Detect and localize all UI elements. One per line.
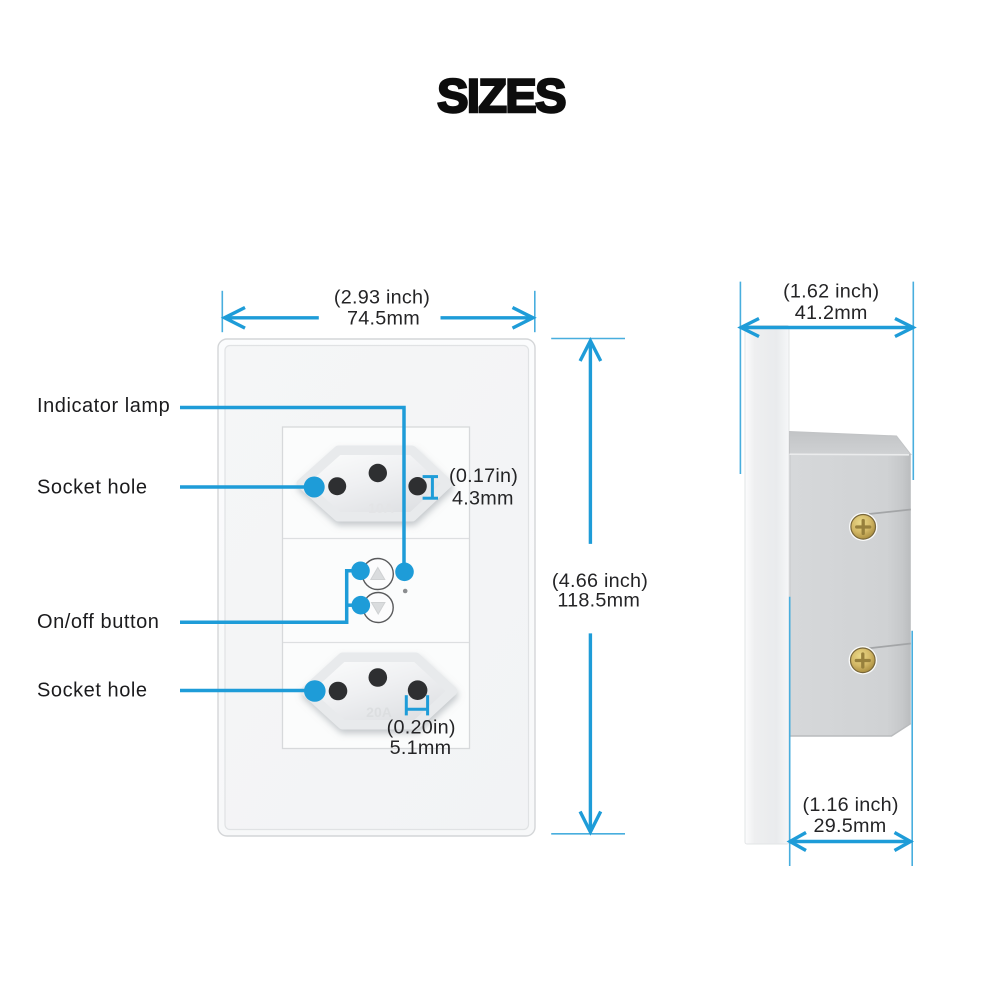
- svg-text:SIZES: SIZES: [437, 69, 565, 122]
- svg-text:(1.62 inch): (1.62 inch): [783, 281, 879, 303]
- svg-text:(0.17in): (0.17in): [449, 465, 518, 487]
- svg-text:41.2mm: 41.2mm: [795, 302, 868, 324]
- svg-text:74.5mm: 74.5mm: [347, 308, 420, 330]
- svg-text:Socket hole: Socket hole: [37, 477, 148, 499]
- svg-text:(0.20in): (0.20in): [387, 717, 456, 739]
- svg-text:5.1mm: 5.1mm: [390, 737, 452, 759]
- svg-text:118.5mm: 118.5mm: [557, 590, 640, 612]
- svg-text:29.5mm: 29.5mm: [814, 815, 887, 837]
- svg-text:10A: 10A: [368, 500, 394, 516]
- svg-text:(1.16 inch): (1.16 inch): [802, 794, 898, 816]
- svg-text:4.3mm: 4.3mm: [452, 488, 514, 510]
- svg-text:On/off button: On/off button: [37, 611, 159, 633]
- svg-text:Socket hole: Socket hole: [37, 680, 148, 702]
- svg-text:(2.93 inch): (2.93 inch): [334, 287, 430, 309]
- svg-text:Indicator lamp: Indicator lamp: [37, 395, 170, 417]
